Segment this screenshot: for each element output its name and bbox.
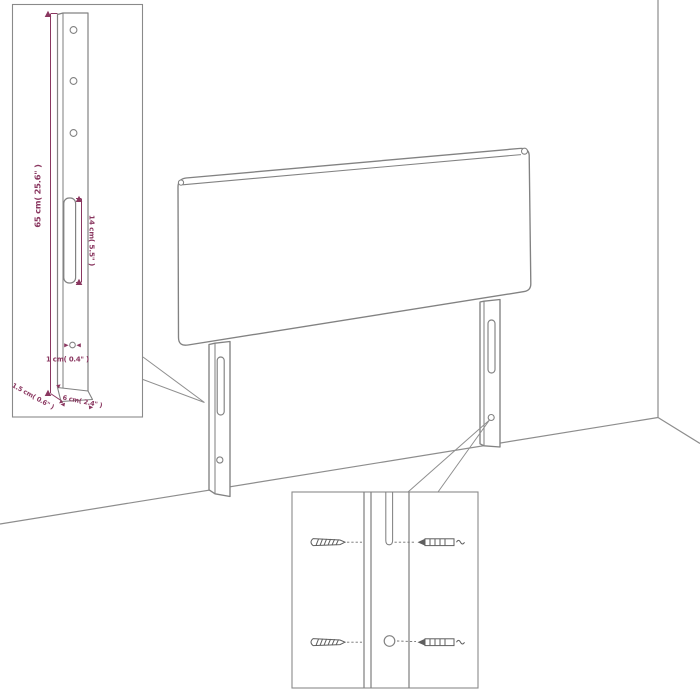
post-slot xyxy=(64,198,76,283)
headboard-right-leg xyxy=(480,300,500,448)
floor-line-right xyxy=(658,418,700,444)
right-leg-screw-hole xyxy=(488,415,494,421)
left-leg-slot xyxy=(217,357,224,415)
headboard-panel xyxy=(178,148,531,345)
mounting-hole xyxy=(384,636,395,647)
headboard-panel-group xyxy=(178,148,531,345)
callout-lines-left xyxy=(143,357,205,403)
piping-curl-left xyxy=(178,180,183,185)
mounting-inset-border xyxy=(292,492,478,688)
diagram-svg: 65 cm( 25.6" ) 14 cm( 5.5" ) 1 cm( 0.4" … xyxy=(0,0,700,700)
left-leg-screw-hole xyxy=(217,457,223,463)
post-hole-top xyxy=(70,27,77,34)
piping-curl-right xyxy=(522,148,528,154)
right-leg-slot xyxy=(488,320,495,373)
headboard-left-leg xyxy=(209,342,230,497)
leg-inset-callout xyxy=(143,357,205,403)
mounting-detail-inset xyxy=(292,492,478,688)
headboard-dimension-diagram: 65 cm( 25.6" ) 14 cm( 5.5" ) 1 cm( 0.4" … xyxy=(0,0,700,700)
hole-dimension-label: 1 cm( 0.4" ) xyxy=(46,356,89,364)
post-hole-bottom xyxy=(70,130,77,137)
leg-detail-inset: 65 cm( 25.6" ) 14 cm( 5.5" ) 1 cm( 0.4" … xyxy=(10,5,142,418)
slot-dimension-label: 14 cm( 5.5" ) xyxy=(88,215,97,266)
height-dimension-label: 65 cm( 25.6" ) xyxy=(33,164,43,228)
post-hole-middle xyxy=(70,78,77,85)
post-small-hole xyxy=(70,342,76,348)
